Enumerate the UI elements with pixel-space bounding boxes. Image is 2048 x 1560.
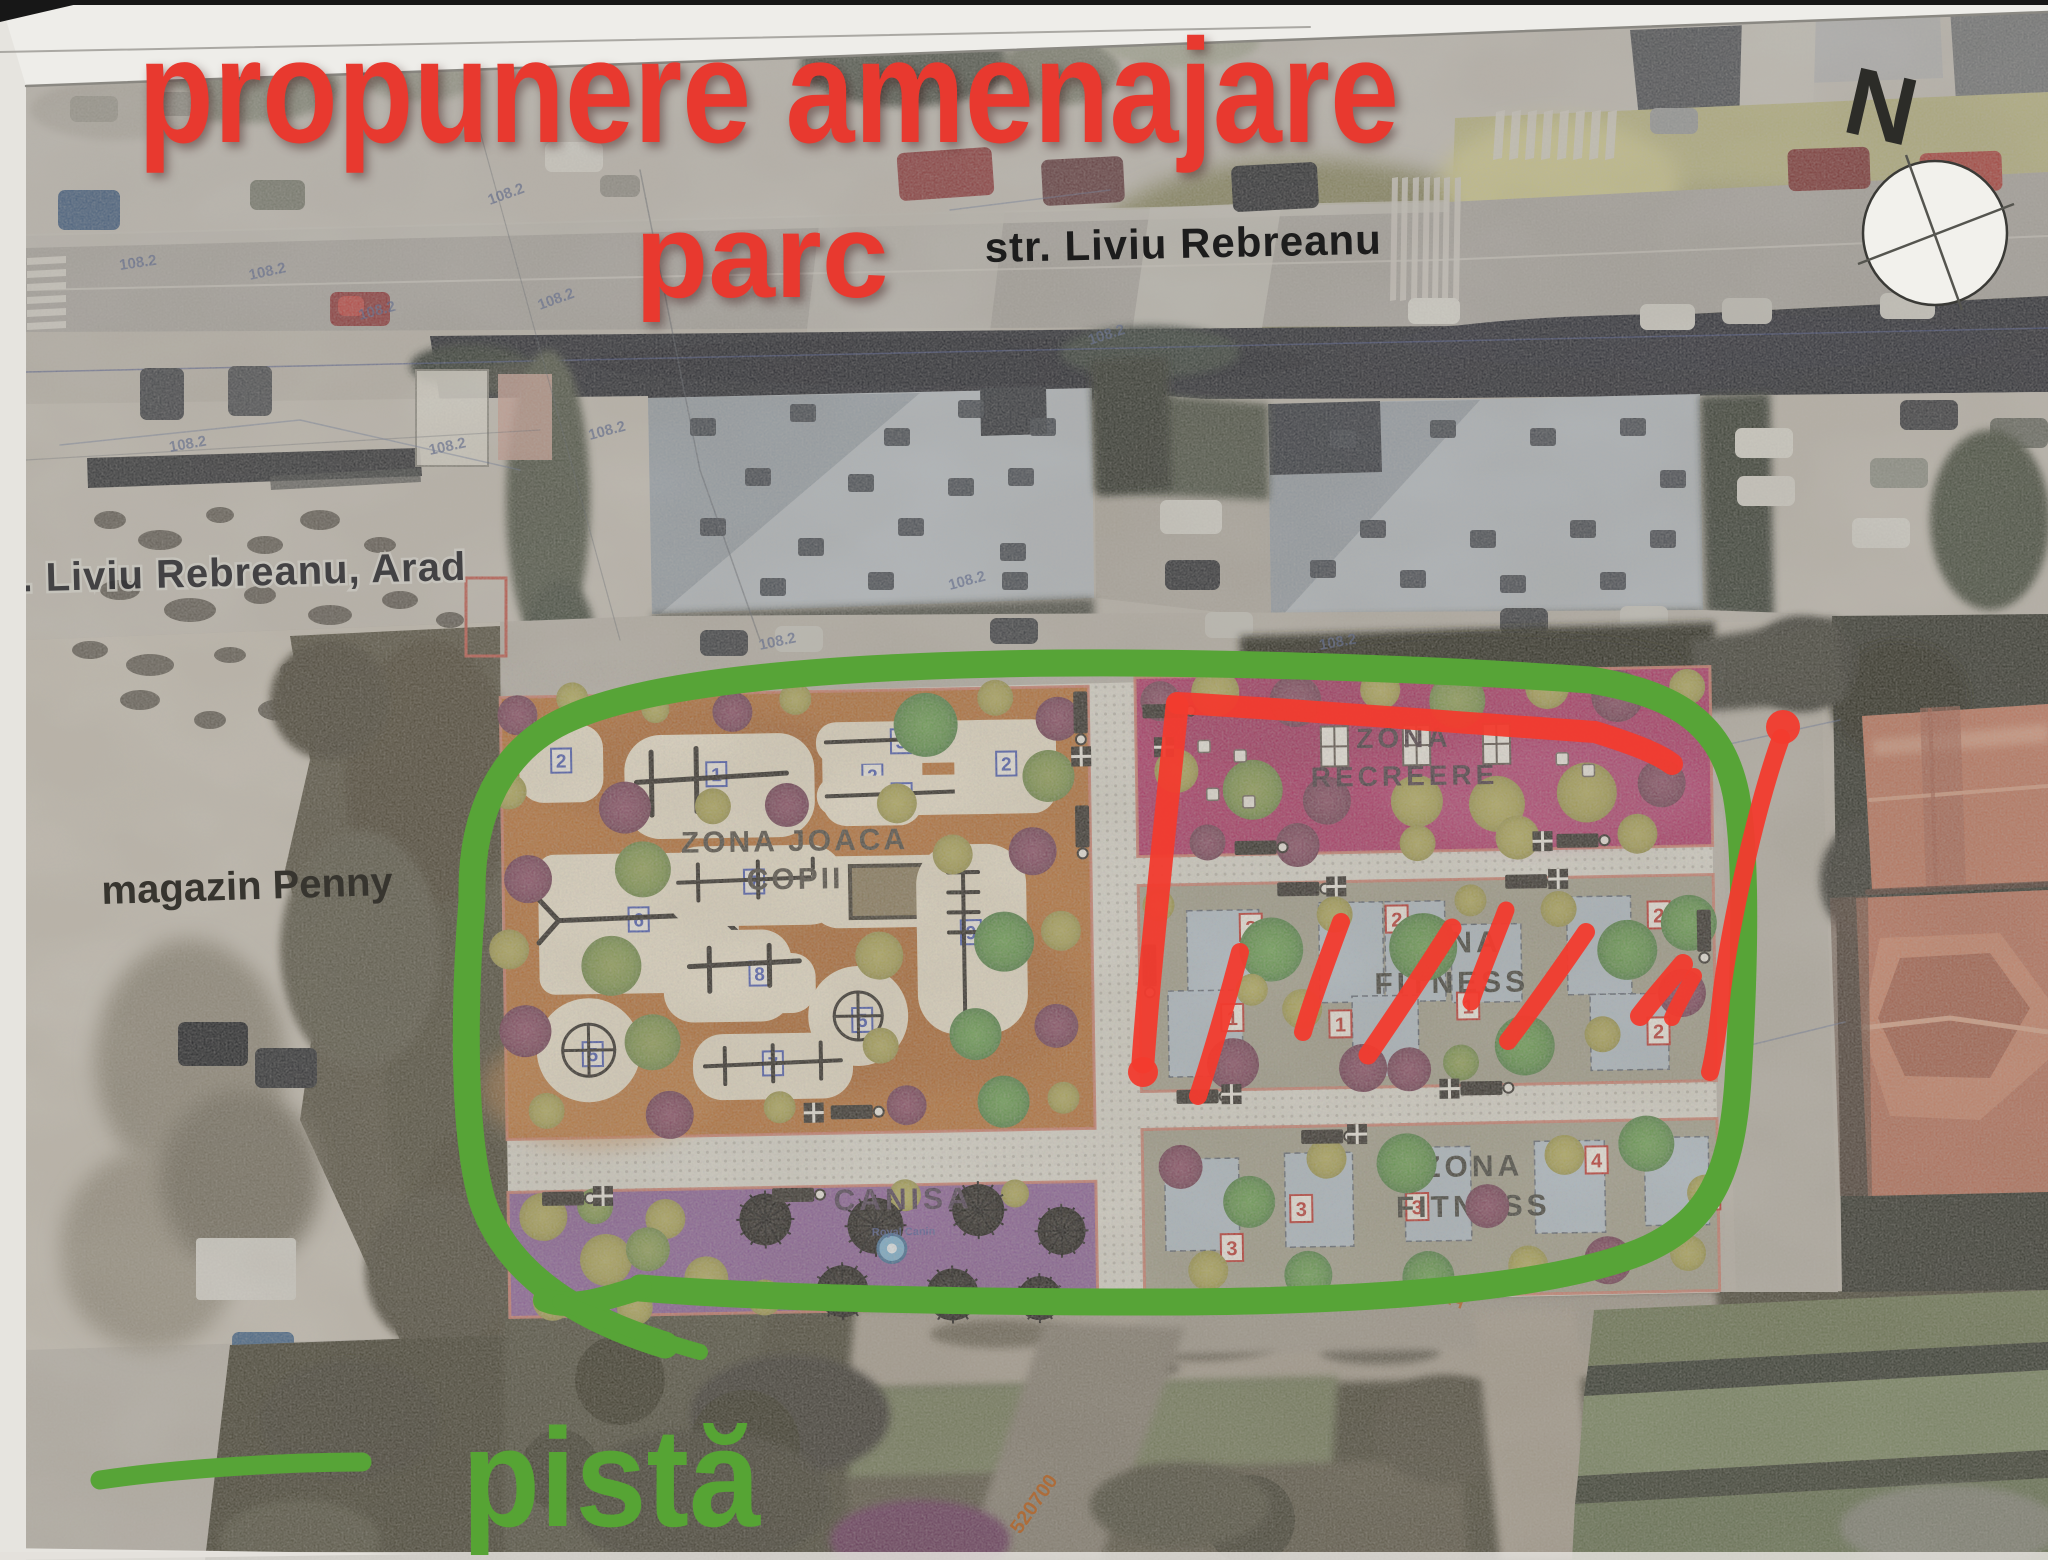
svg-text:str. Liviu Rebreanu: str. Liviu Rebreanu xyxy=(984,216,1382,271)
svg-text:propunere amenajare: propunere amenajare xyxy=(138,9,1399,174)
svg-text:magazin Penny: magazin Penny xyxy=(101,860,394,913)
svg-text:pistă: pistă xyxy=(462,1399,761,1556)
svg-text:parc: parc xyxy=(635,189,888,323)
